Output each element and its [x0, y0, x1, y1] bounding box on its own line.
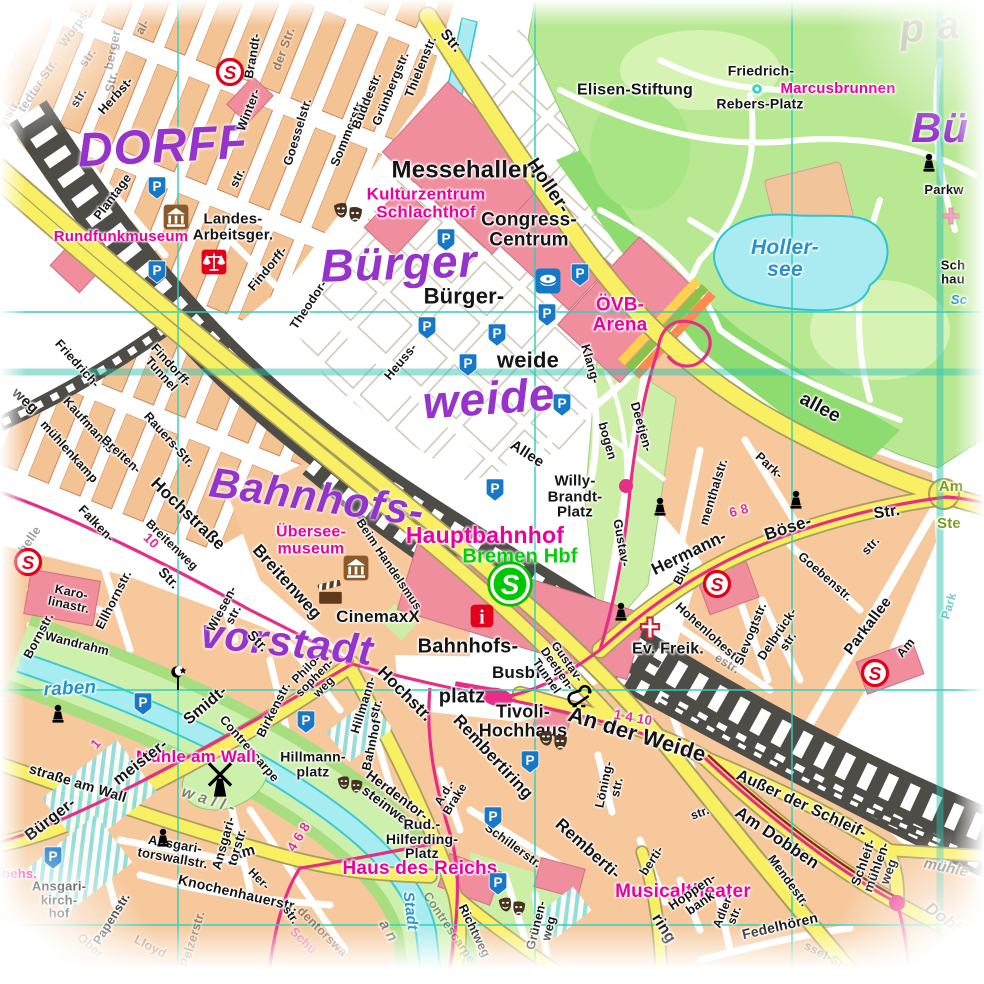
poi-kulturzentrum: Kulturzentrum Schlachthof	[367, 185, 486, 220]
cinema-clapper-icon	[317, 580, 345, 608]
parking-icon	[483, 478, 507, 502]
theater-masks-icon	[497, 893, 527, 923]
parking-icon	[568, 263, 592, 287]
poi-ev-freik: Ev. Freik.	[632, 642, 704, 659]
lbl-am-stern1: Am	[939, 479, 964, 495]
poi-cinemaxx: CinemaxX	[336, 608, 420, 626]
poi-schhau: Sch hau	[941, 258, 965, 285]
st-buerger-black: Bürger-	[424, 286, 505, 309]
museum-icon	[343, 555, 370, 582]
district-park-dim: p a	[898, 5, 962, 52]
mosque-icon	[165, 665, 191, 691]
district-findorff: DORFF	[77, 118, 250, 177]
wat-stadt: Stadt	[400, 891, 420, 931]
windmill-icon	[202, 762, 238, 798]
poi-landesarbeitsger: Landes- Arbeitsger.	[193, 211, 274, 242]
city-map: P S S i	[0, 0, 984, 984]
poi-uebersee: Übersee- museum	[276, 524, 346, 557]
parking-icon	[415, 316, 439, 340]
parking-icon	[131, 692, 155, 716]
statue-icon	[786, 490, 806, 510]
sbahn-icon	[860, 658, 890, 688]
court-scales-icon	[201, 249, 228, 276]
poi-ansgarikirchhof: Ansgari- kirch- hof	[32, 880, 86, 921]
parking-icon	[41, 846, 65, 870]
parking-icon	[550, 393, 574, 417]
poi-oevb: ÖVB- Arena	[593, 295, 648, 335]
sbahn-icon	[13, 547, 43, 577]
statue-icon	[153, 828, 173, 848]
parking-icon	[456, 353, 480, 377]
info-icon	[469, 603, 495, 629]
st-bahnhofsplatz1: Bahnhofs-	[418, 637, 519, 658]
lbl-am-stern2: Ste	[937, 516, 961, 532]
statue-icon	[611, 602, 631, 622]
sbahn-icon	[702, 569, 732, 599]
poi-elisen: Elisen-Stiftung	[577, 83, 693, 100]
parking-icon	[485, 323, 509, 347]
poi-hauptbahnhof: Hauptbahnhof	[406, 524, 564, 548]
wat-hollersee: Holler- see	[751, 237, 819, 281]
parking-icon	[145, 176, 169, 200]
statue-icon	[919, 153, 939, 173]
parking-icon	[294, 710, 318, 734]
poi-parkw: Parkw	[924, 183, 963, 197]
wat-graben: raben	[43, 678, 97, 700]
poi-messehallen: Messehallen	[392, 159, 537, 184]
hospital-cross-icon	[941, 206, 961, 226]
poi-haus-des-reichs: Haus des Reichs	[342, 859, 497, 879]
parking-icon	[145, 260, 169, 284]
church-cross-icon	[637, 615, 663, 641]
wat-sc: Sc	[951, 293, 967, 307]
posthorn-icon	[566, 683, 594, 711]
district-weide: weide	[421, 371, 557, 428]
poi-rundfunkmuseum: Rundfunkmuseum	[54, 229, 188, 245]
district-buergerpark: Bü	[911, 106, 969, 150]
parking-icon	[481, 806, 505, 830]
parking-icon	[535, 303, 559, 327]
fountain-icon	[751, 83, 764, 96]
poi-hilferding: Rud.- Hilferding- Platz	[386, 817, 458, 861]
sbahn-icon	[215, 57, 245, 87]
statue-icon	[650, 497, 670, 517]
sbahn-hbf-icon	[487, 561, 533, 607]
poi-rebers-platz: Rebers-Platz	[716, 97, 803, 112]
statue-icon	[48, 704, 68, 724]
st-weide-black: weide	[497, 350, 559, 373]
theater-masks-icon	[336, 772, 364, 800]
poi-friedrich-rebers: Friedrich-	[728, 64, 795, 79]
poi-willy: Willy- Brandt- Platz	[548, 474, 603, 521]
museum-icon	[163, 204, 190, 231]
theater-masks-icon	[537, 726, 569, 758]
poi-rbehs: rbehs.	[0, 867, 37, 881]
theater-masks-icon	[332, 198, 364, 230]
poi-marcusbrunnen: Marcusbrunnen	[780, 81, 895, 97]
parking-icon	[434, 228, 458, 252]
police-icon	[535, 268, 562, 295]
poi-congress: Congress- Centrum	[481, 210, 577, 250]
